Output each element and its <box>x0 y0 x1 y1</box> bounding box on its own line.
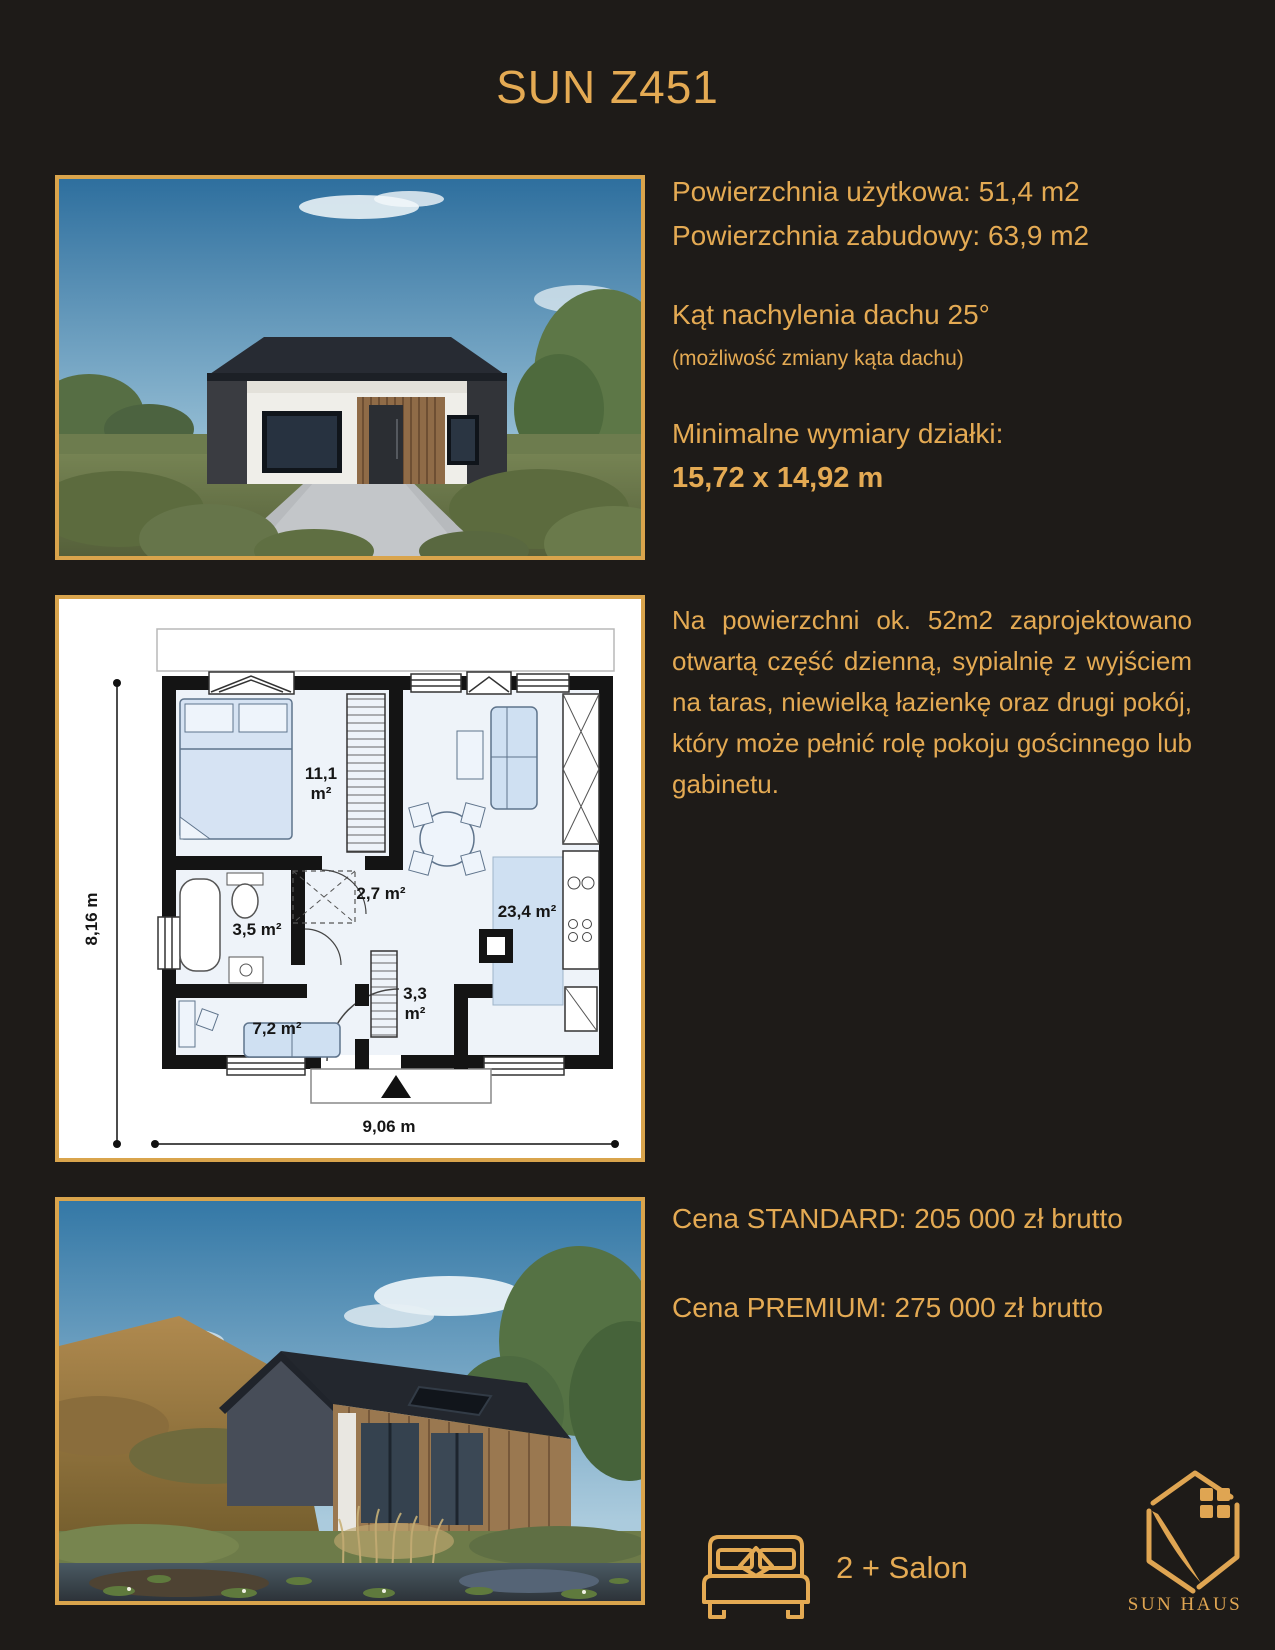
spec-usable-area: Powierzchnia użytkowa: 51,4 m2 <box>672 170 1192 214</box>
price-standard: Cena STANDARD: 205 000 zł brutto <box>672 1203 1123 1235</box>
spec-built-area: Powierzchnia zabudowy: 63,9 m2 <box>672 214 1192 258</box>
room-label-hall: 2,7 m² <box>356 884 405 903</box>
brand-name: SUN HAUS <box>1128 1594 1243 1615</box>
bed-icon <box>700 1522 812 1620</box>
room-label-bedroom: 11,1 <box>305 764 337 783</box>
description-paragraph: Na powierzchni ok. 52m2 zaprojektowano o… <box>672 600 1192 805</box>
price-premium: Cena PREMIUM: 275 000 zł brutto <box>672 1292 1103 1324</box>
house-photo-front-art <box>59 179 641 556</box>
room-label-hall2: 3,3 <box>403 984 427 1003</box>
room-label-hall2-unit: m² <box>405 1004 426 1023</box>
spec-block: Powierzchnia użytkowa: 51,4 m2 Powierzch… <box>672 170 1192 495</box>
plot-size: 15,72 x 14,92 m <box>672 462 1192 495</box>
spec-roof-note: (możliwość zmiany kąta dachu) <box>672 347 1192 371</box>
plan-dim-width: 9,06 m <box>363 1117 416 1136</box>
room-label-bedroom-unit: m² <box>311 784 332 803</box>
room-label-living: 23,4 m² <box>498 902 557 921</box>
floor-plan: 11,1 m² 2,7 m² 3,5 m² 23,4 m² 3,3 m² 7,2… <box>55 595 645 1162</box>
house-photo-front <box>55 175 645 560</box>
room-label-room: 7,2 m² <box>252 1019 301 1038</box>
plot-label: Minimalne wymiary działki: <box>672 418 1192 450</box>
page-title: SUN Z451 <box>0 60 1215 114</box>
floor-plan-drawing: 11,1 m² 2,7 m² 3,5 m² 23,4 m² 3,3 m² 7,2… <box>59 599 641 1158</box>
spec-roof-angle: Kąt nachylenia dachu 25° <box>672 293 1192 337</box>
sunhaus-logo: SUN HAUS <box>1115 1455 1255 1615</box>
room-label-bathroom: 3,5 m² <box>232 920 281 939</box>
house-photo-side-art <box>59 1201 641 1601</box>
plan-dim-height: 8,16 m <box>82 893 101 946</box>
house-photo-side <box>55 1197 645 1605</box>
rooms-count-label: 2 + Salon <box>836 1550 968 1586</box>
flyer-page: SUN Z451 <box>0 0 1275 1650</box>
